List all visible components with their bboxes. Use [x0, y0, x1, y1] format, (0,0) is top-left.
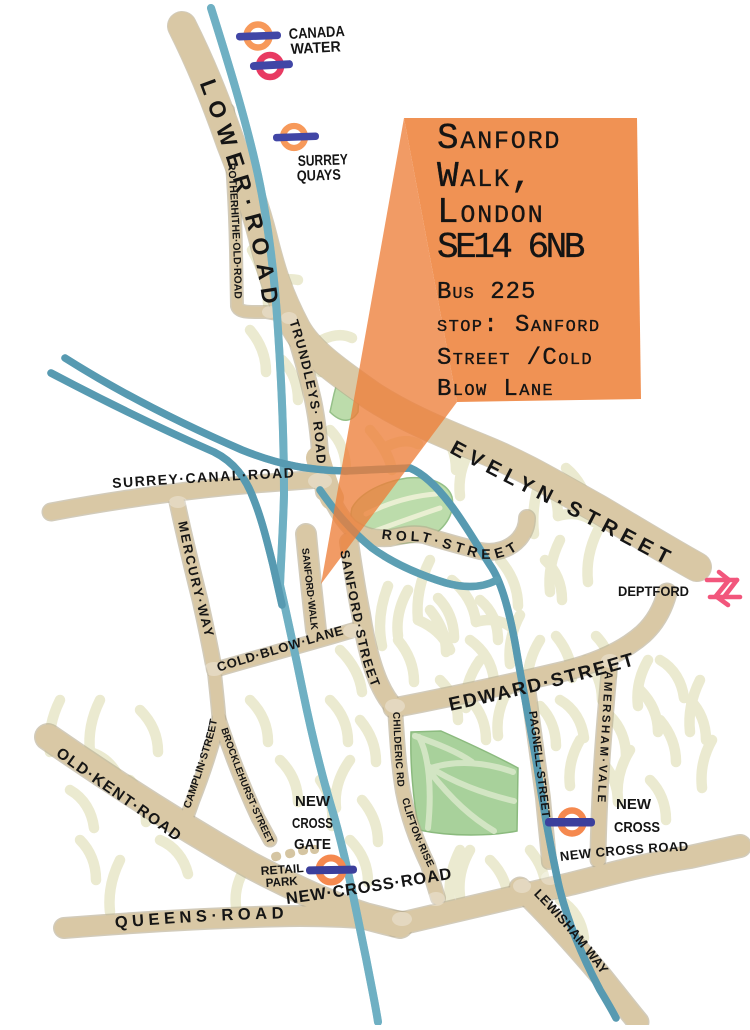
- svg-text:QUAYS: QUAYS: [297, 166, 342, 185]
- svg-text:stop: Sanford: stop: Sanford: [437, 312, 600, 339]
- svg-text:CROSS: CROSS: [292, 815, 333, 832]
- svg-text:GATE: GATE: [294, 836, 331, 853]
- svg-text:PARK: PARK: [265, 874, 298, 890]
- svg-text:Sanford: Sanford: [437, 118, 561, 159]
- svg-text:NEW: NEW: [616, 796, 652, 813]
- svg-text:WATER: WATER: [290, 38, 341, 58]
- svg-text:NEW: NEW: [295, 793, 331, 810]
- svg-text:Street /Cold: Street /Cold: [437, 345, 593, 372]
- svg-text:Blow Lane: Blow Lane: [437, 376, 554, 403]
- svg-text:DEPTFORD: DEPTFORD: [618, 583, 689, 599]
- svg-text:Walk,: Walk,: [437, 156, 534, 197]
- svg-text:SE14 6NB: SE14 6NB: [437, 227, 585, 268]
- svg-text:CROSS: CROSS: [614, 819, 660, 836]
- svg-text:Bus 225: Bus 225: [437, 279, 536, 306]
